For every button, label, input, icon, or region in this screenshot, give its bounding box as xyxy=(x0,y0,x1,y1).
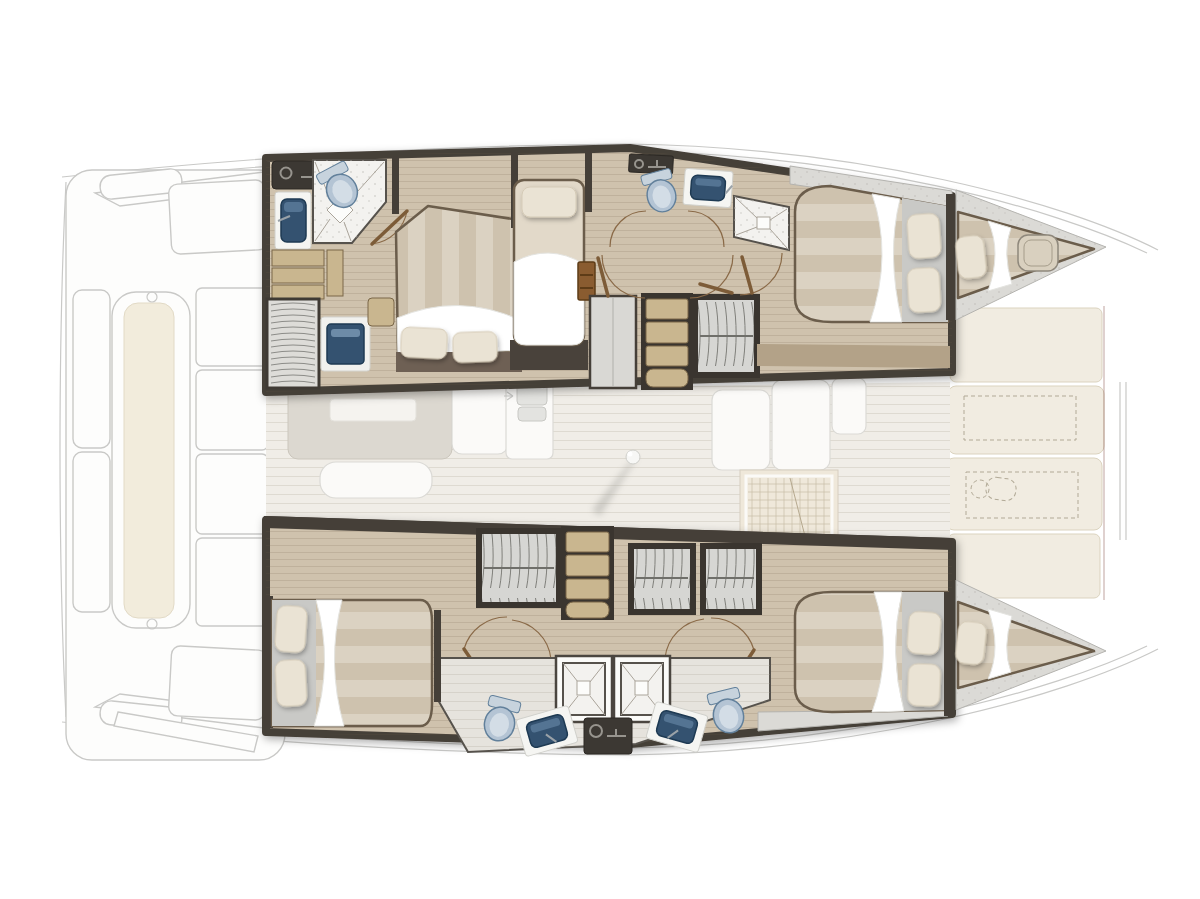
mast-post-highlight xyxy=(628,452,633,457)
stbd-aft-cabin xyxy=(264,596,432,728)
step xyxy=(272,285,324,299)
hull-stairs xyxy=(641,293,693,390)
cockpit-panel-top xyxy=(168,180,268,255)
layout-plan xyxy=(0,0,1200,899)
floorplan-canvas xyxy=(0,0,1200,899)
aft-cockpit xyxy=(66,168,285,760)
pillow xyxy=(907,663,940,706)
swim-step-top xyxy=(73,290,110,448)
washer-glass xyxy=(331,329,360,337)
pillow xyxy=(522,187,576,217)
wardrobe xyxy=(476,528,562,608)
pillow xyxy=(907,213,942,259)
partition-wall xyxy=(434,610,441,702)
stair-tread xyxy=(566,532,609,552)
foredeck-panel xyxy=(950,308,1102,382)
stair-tread xyxy=(646,369,688,387)
shower-drain xyxy=(577,681,590,695)
pillow xyxy=(452,331,497,363)
stair-tread xyxy=(646,299,688,319)
settee-end xyxy=(832,378,866,434)
seat-locker xyxy=(368,298,394,326)
partition-wall xyxy=(392,156,399,214)
foredeck-panel xyxy=(946,458,1102,530)
pillow xyxy=(274,605,307,653)
forepeak-bulkhead xyxy=(944,592,953,716)
cockpit-panel-bottom xyxy=(168,646,268,721)
sink-highlight xyxy=(284,202,303,212)
stair-tread xyxy=(566,602,609,618)
port-single-cabin xyxy=(510,150,595,370)
galley-bench xyxy=(320,462,432,498)
stair-tread xyxy=(566,555,609,576)
shower-drain xyxy=(757,217,770,229)
stair-tread xyxy=(566,579,609,599)
step xyxy=(272,250,324,266)
pillow xyxy=(907,611,942,655)
sink-basin xyxy=(518,407,546,421)
step-side-panel xyxy=(327,250,343,296)
foredeck xyxy=(946,306,1126,600)
galley-island-top xyxy=(330,399,416,421)
settee xyxy=(772,380,830,470)
settee xyxy=(712,390,770,470)
cockpit-seat xyxy=(196,454,268,534)
wardrobe xyxy=(700,543,762,615)
forepeak-bulkhead xyxy=(946,194,955,320)
stair-tread xyxy=(646,346,688,366)
pillow xyxy=(400,327,448,359)
pillow xyxy=(907,267,941,313)
sink-basin xyxy=(690,175,726,201)
cockpit-seat xyxy=(196,288,268,366)
step xyxy=(272,268,324,283)
swim-step-bottom xyxy=(73,452,110,612)
mast-post xyxy=(626,450,640,464)
aft-staircase xyxy=(267,299,319,388)
transom-edge xyxy=(60,182,66,717)
galley-counter xyxy=(452,380,508,454)
cockpit-seat xyxy=(196,538,268,626)
sink-unit xyxy=(683,168,733,207)
stair-tread xyxy=(646,322,688,343)
hull-stairs xyxy=(561,526,614,620)
bed-sheet xyxy=(514,253,584,345)
aft-bench-cushion xyxy=(124,303,174,618)
cockpit-seat xyxy=(196,370,268,450)
pillow xyxy=(275,659,307,707)
port-forepeak xyxy=(946,190,1106,320)
pillow xyxy=(955,621,987,666)
pillow xyxy=(955,235,987,280)
shower-drain xyxy=(635,681,648,695)
stbd-forepeak xyxy=(944,580,1106,716)
wardrobe xyxy=(692,294,760,378)
step-ladder xyxy=(578,262,595,300)
wardrobe xyxy=(628,543,696,615)
floor-step xyxy=(757,344,950,368)
partition-wall xyxy=(585,150,592,212)
